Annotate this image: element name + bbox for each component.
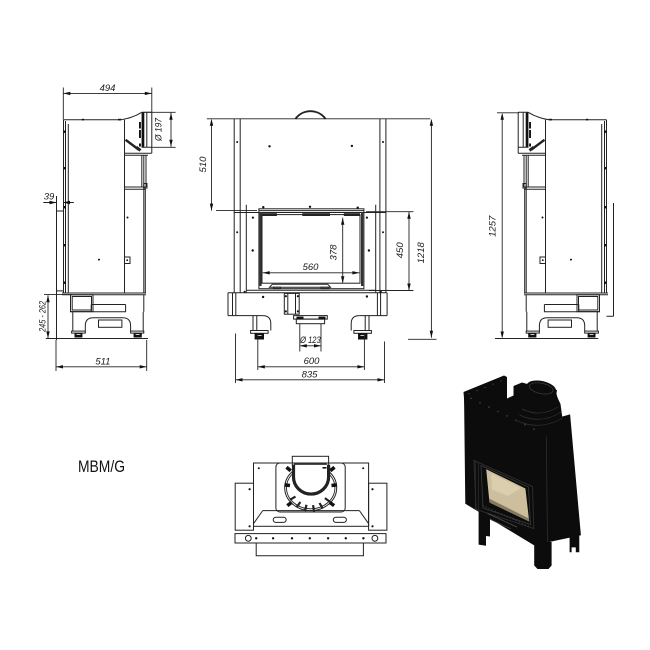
svg-text:511: 511 <box>95 356 110 367</box>
svg-text:Ø 197: Ø 197 <box>154 117 165 142</box>
svg-text:600: 600 <box>304 356 321 367</box>
svg-text:39: 39 <box>44 192 55 203</box>
svg-text:835: 835 <box>302 369 319 380</box>
svg-text:Ø 123: Ø 123 <box>299 335 321 346</box>
svg-text:1257: 1257 <box>488 215 499 237</box>
svg-text:378: 378 <box>329 244 340 261</box>
svg-text:245 - 262: 245 - 262 <box>38 300 49 332</box>
svg-text:MBM/G: MBM/G <box>78 457 125 476</box>
svg-text:560: 560 <box>303 262 320 273</box>
svg-text:1218: 1218 <box>416 242 427 264</box>
svg-text:450: 450 <box>395 242 406 259</box>
svg-text:494: 494 <box>100 83 116 94</box>
svg-text:510: 510 <box>198 156 209 173</box>
